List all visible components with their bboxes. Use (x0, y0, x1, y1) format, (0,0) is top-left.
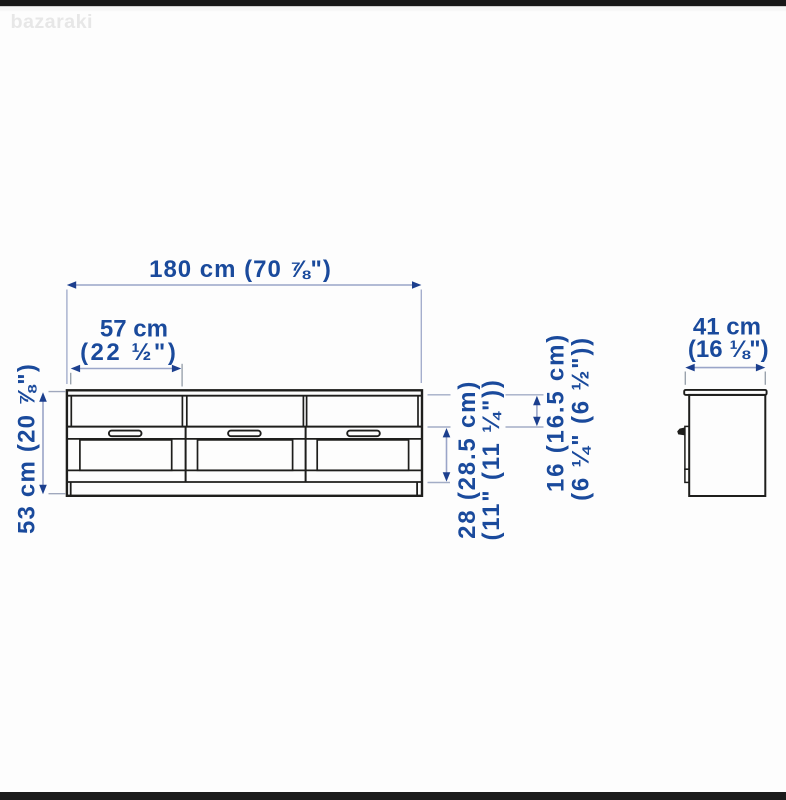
svg-text:28 (28.5 cm): 28 (28.5 cm) (454, 380, 481, 539)
svg-text:180 cm (70 ⅞"): 180 cm (70 ⅞") (149, 256, 332, 283)
svg-text:53 cm (20 ⅞"): 53 cm (20 ⅞") (14, 363, 41, 534)
svg-text:16 (16.5 cm): 16 (16.5 cm) (543, 333, 570, 492)
svg-text:(11" (11 ¼")): (11" (11 ¼")) (478, 378, 505, 540)
svg-text:(6 ¼" (6 ½")): (6 ¼" (6 ½")) (567, 336, 594, 501)
svg-text:bazaraki: bazaraki (11, 11, 93, 33)
svg-text:(16 ⅛"): (16 ⅛") (688, 336, 769, 363)
svg-text:(22 ½"): (22 ½") (80, 339, 178, 366)
